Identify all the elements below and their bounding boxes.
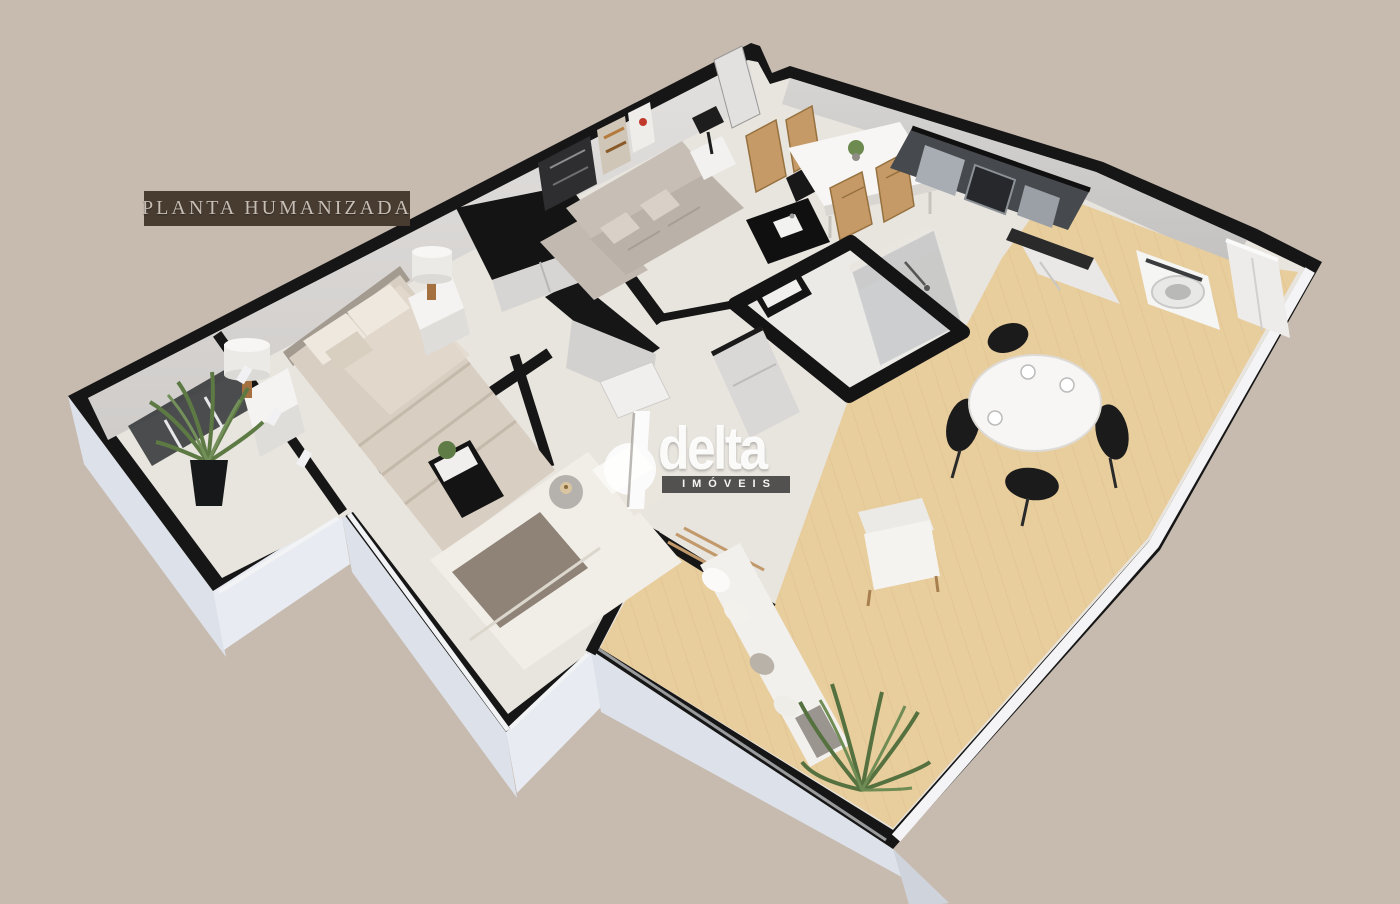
floorplan-render	[0, 0, 1400, 904]
title-badge-label: PLANTA HUMANIZADA	[142, 197, 412, 220]
plant-pot	[190, 460, 228, 506]
vanity-plant	[438, 441, 456, 459]
pouf-with-candle	[549, 475, 583, 509]
marketing-image: PLANTA HUMANIZADA delta IMÓVEIS	[0, 0, 1400, 904]
round-dining-table	[969, 355, 1101, 451]
title-badge: PLANTA HUMANIZADA	[144, 191, 410, 226]
